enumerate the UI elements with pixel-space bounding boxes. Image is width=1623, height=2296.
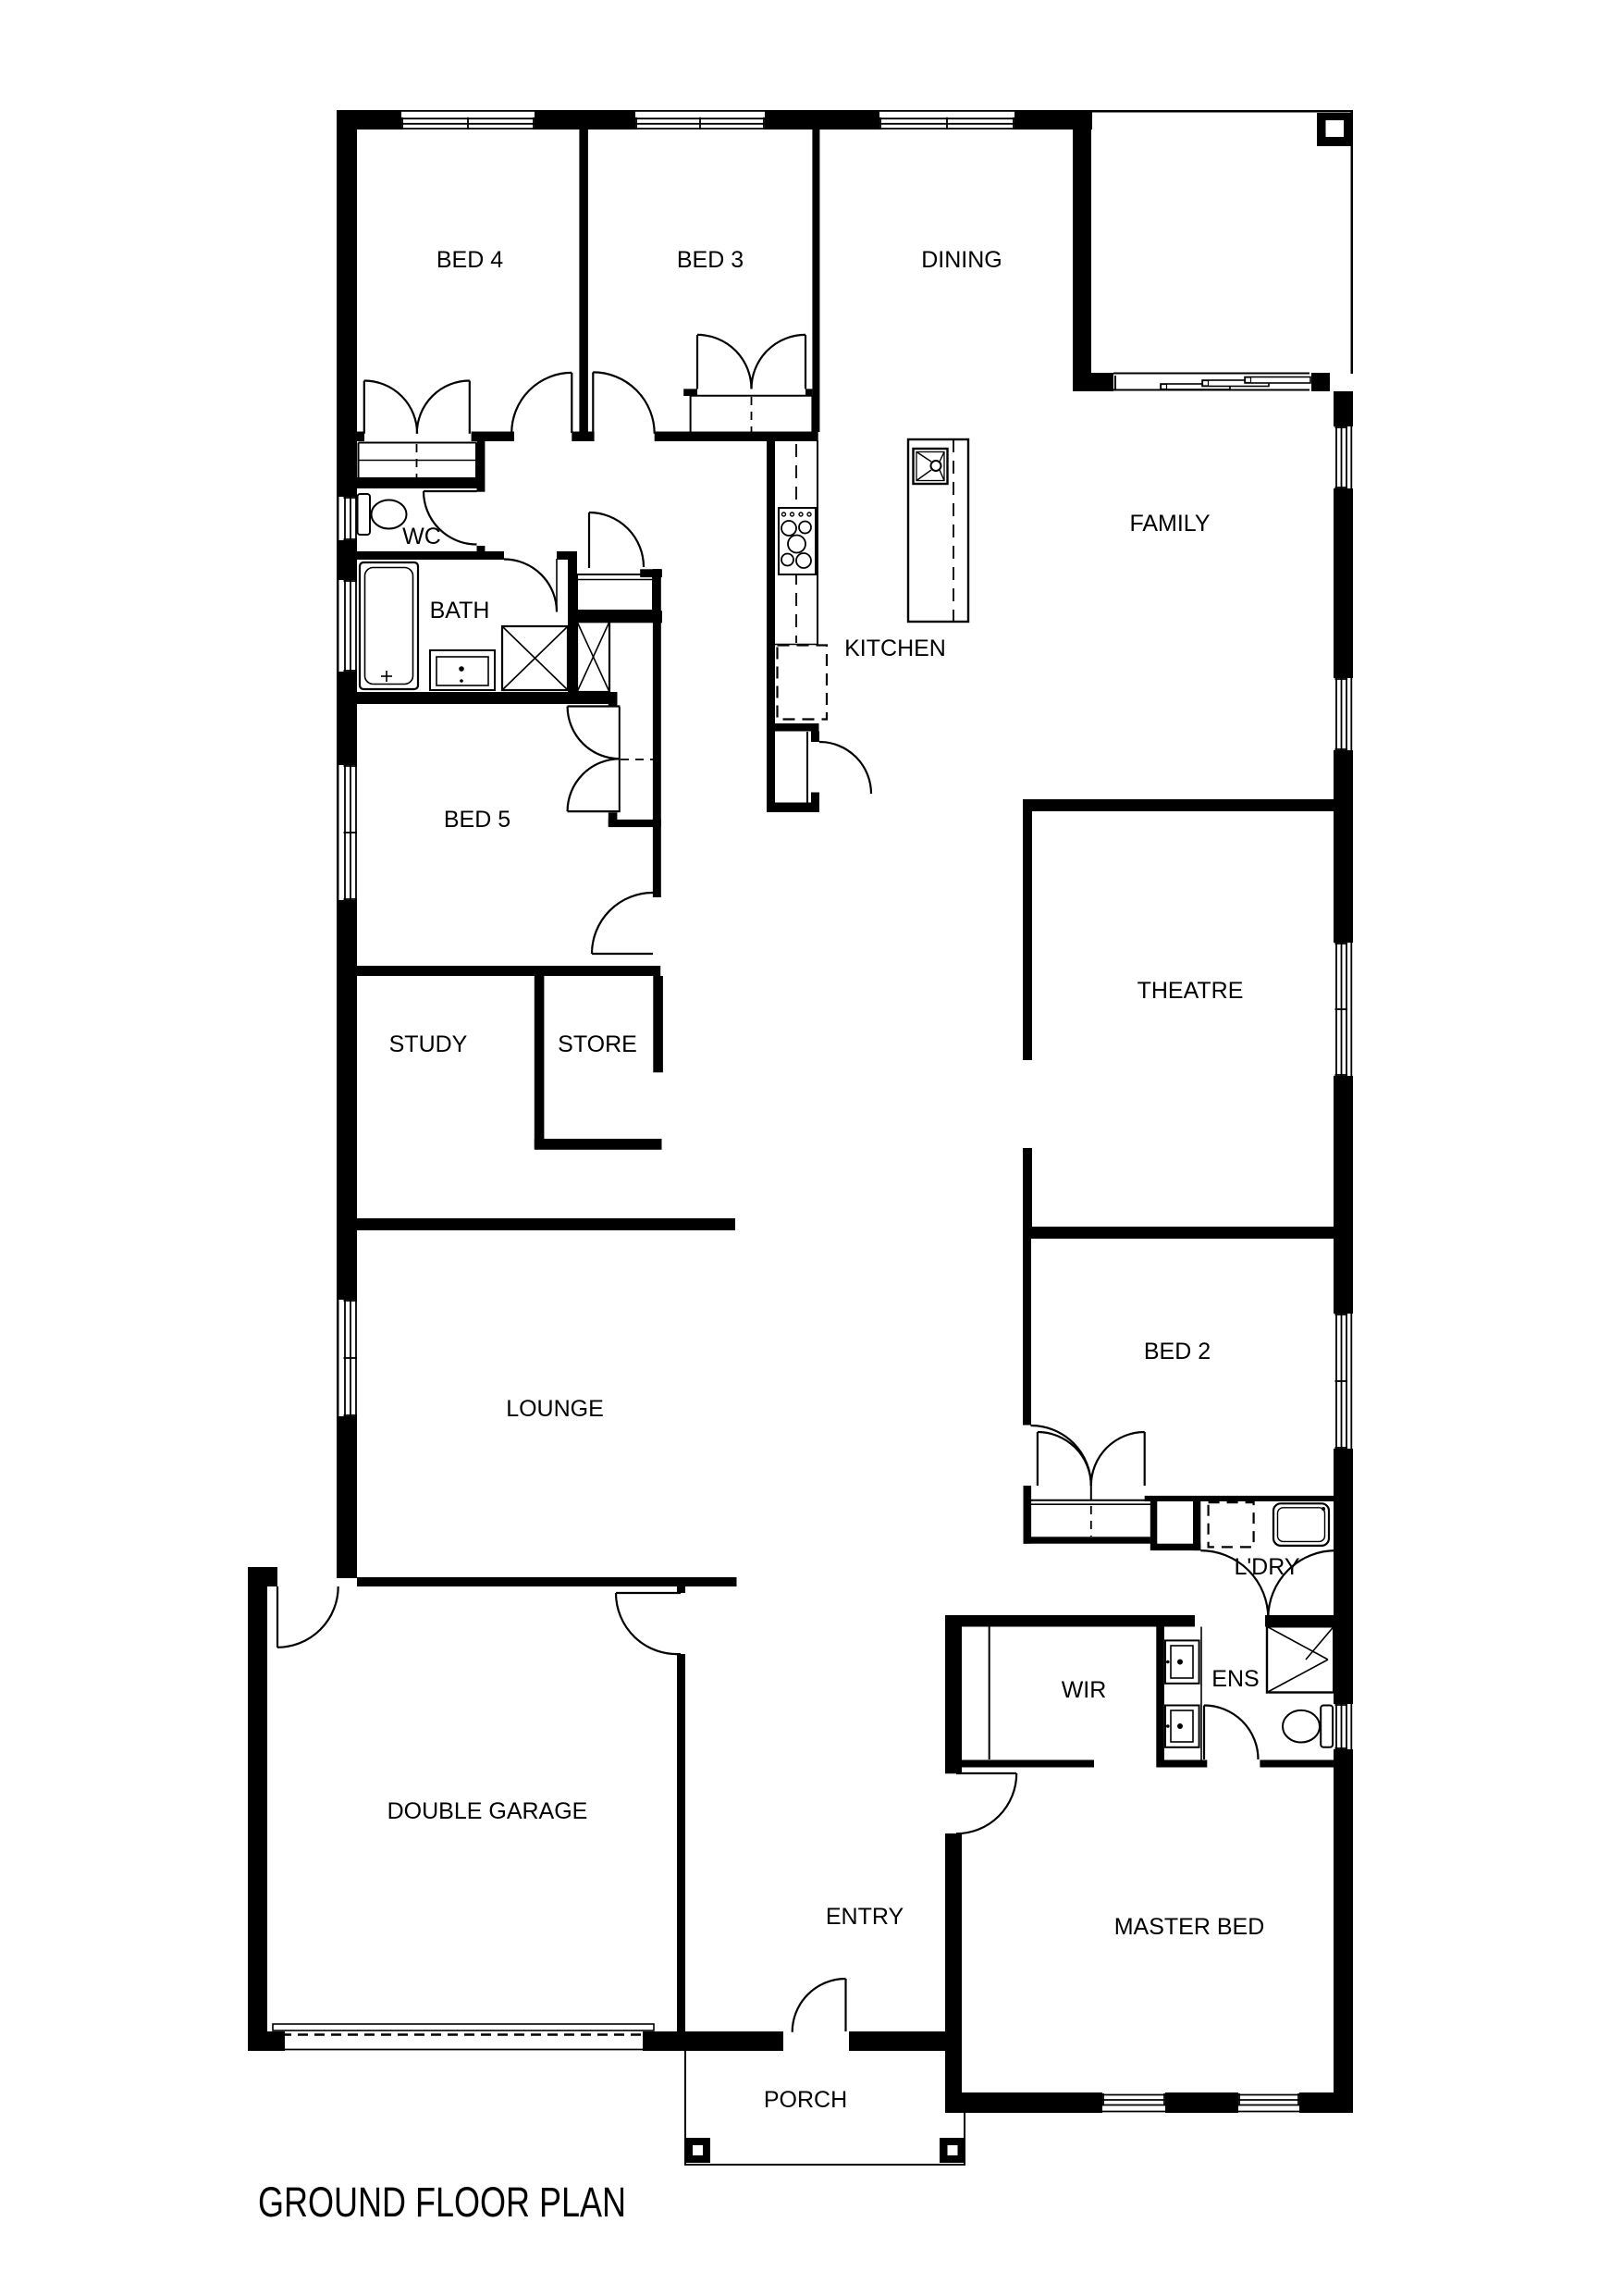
- svg-text:FAMILY: FAMILY: [1129, 511, 1210, 537]
- svg-text:STORE: STORE: [558, 1031, 637, 1057]
- svg-text:WIR: WIR: [1062, 1677, 1107, 1703]
- svg-text:BED 3: BED 3: [677, 247, 744, 273]
- svg-text:KITCHEN: KITCHEN: [844, 636, 946, 661]
- svg-text:GROUND FLOOR PLAN: GROUND FLOOR PLAN: [258, 2179, 626, 2226]
- svg-text:BED 2: BED 2: [1144, 1339, 1211, 1364]
- svg-text:PORCH: PORCH: [764, 2087, 847, 2113]
- svg-text:BED 4: BED 4: [436, 247, 503, 273]
- svg-text:BED 5: BED 5: [444, 807, 510, 833]
- svg-text:DOUBLE GARAGE: DOUBLE GARAGE: [387, 1798, 588, 1824]
- svg-text:ENTRY: ENTRY: [826, 1904, 904, 1930]
- svg-text:ENS: ENS: [1211, 1666, 1259, 1692]
- svg-text:BATH: BATH: [430, 598, 490, 623]
- svg-text:WC: WC: [402, 524, 441, 549]
- svg-text:THEATRE: THEATRE: [1137, 978, 1244, 1004]
- svg-text:L'DRY: L'DRY: [1234, 1554, 1299, 1580]
- svg-text:STUDY: STUDY: [389, 1031, 468, 1057]
- svg-text:LOUNGE: LOUNGE: [506, 1396, 604, 1422]
- svg-text:MASTER BED: MASTER BED: [1114, 1914, 1265, 1940]
- svg-text:DINING: DINING: [921, 247, 1002, 273]
